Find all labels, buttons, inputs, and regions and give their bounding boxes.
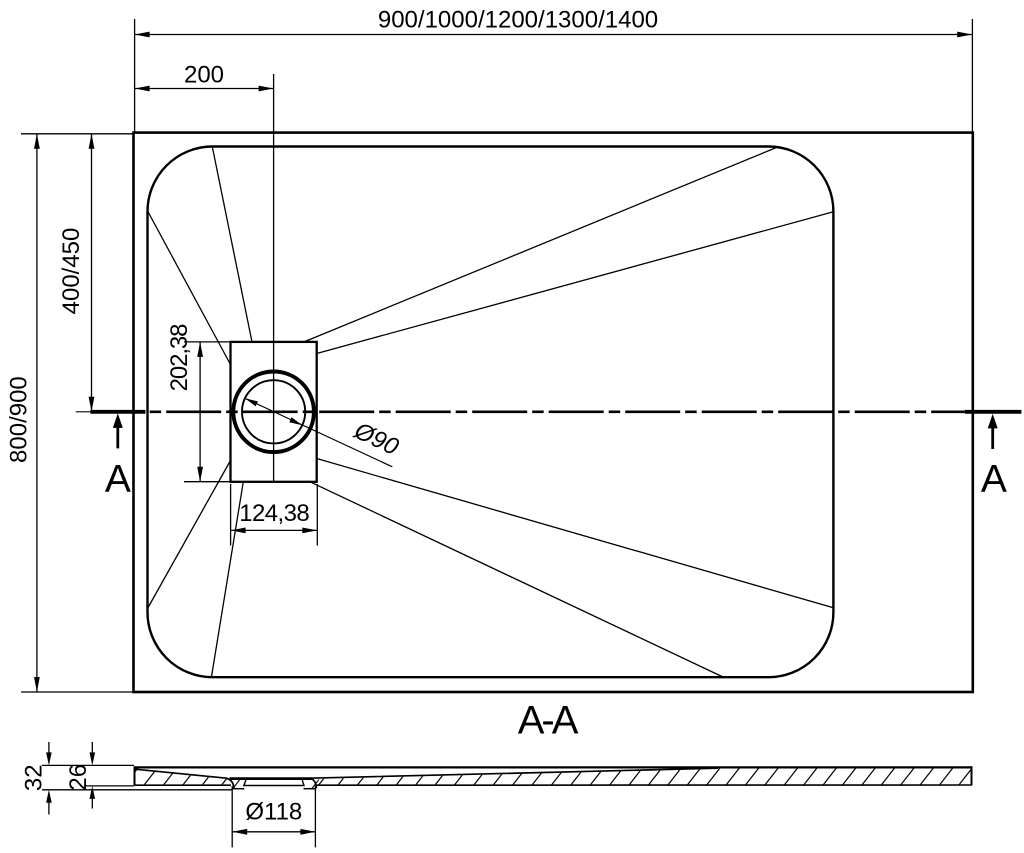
svg-text:202,38: 202,38	[166, 324, 193, 392]
svg-text:32: 32	[21, 764, 48, 791]
svg-text:124,38: 124,38	[239, 500, 309, 527]
svg-text:900/1000/1200/1300/1400: 900/1000/1200/1300/1400	[378, 7, 658, 34]
svg-text:A-A: A-A	[518, 699, 579, 743]
svg-text:400/450: 400/450	[58, 228, 85, 315]
svg-text:800/900: 800/900	[5, 376, 32, 463]
svg-text:Ø118: Ø118	[245, 799, 302, 826]
svg-text:26: 26	[65, 764, 92, 791]
svg-text:A: A	[105, 458, 131, 501]
svg-text:A: A	[981, 458, 1007, 501]
svg-text:200: 200	[184, 62, 224, 89]
